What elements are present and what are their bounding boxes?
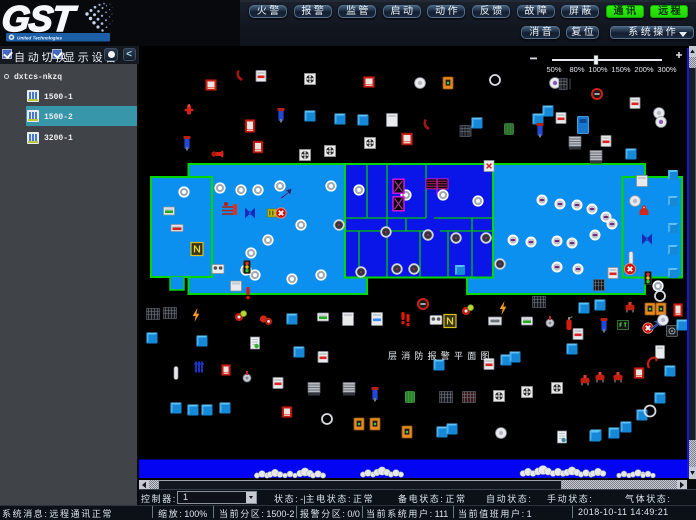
svg-text:300%: 300% [657,65,677,74]
svg-text:80%: 80% [569,65,584,74]
svg-text:100%: 100% [588,65,608,74]
svg-text:200%: 200% [634,65,654,74]
svg-text:150%: 150% [611,65,631,74]
svg-text:50%: 50% [546,65,561,74]
